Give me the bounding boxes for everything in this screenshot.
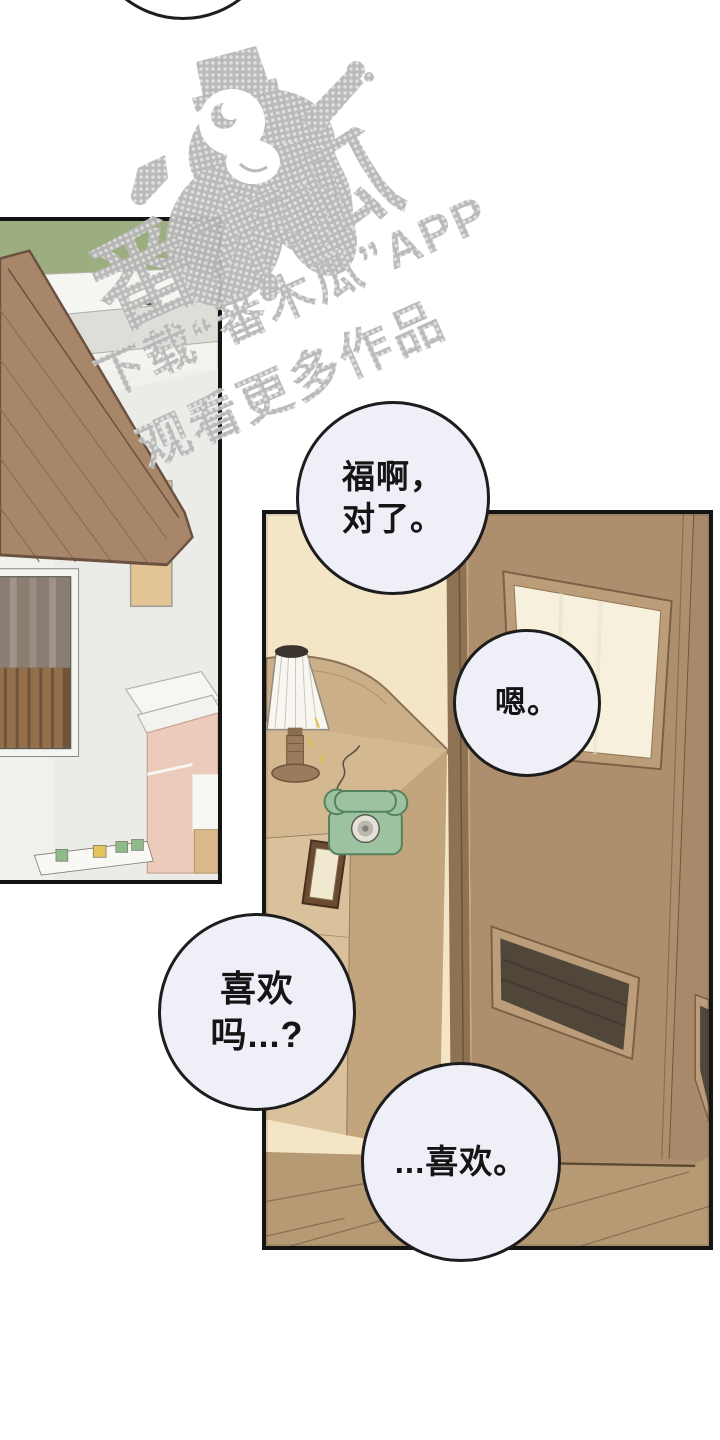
speech-line: ...喜欢。: [395, 1141, 528, 1183]
speech-bubble-3: 喜欢 吗...?: [158, 913, 356, 1111]
speech-line: 对了。: [342, 498, 444, 540]
speech-bubble-1: 福啊， 对了。: [296, 401, 490, 595]
speech-line: 嗯。: [495, 683, 559, 723]
mascot-eye-icon: [199, 89, 265, 155]
speech-bubble-2: 嗯。: [453, 629, 601, 777]
panel-house-exterior: [0, 217, 222, 884]
house-exterior-art: [0, 221, 218, 880]
speech-line: 福啊，: [342, 456, 444, 498]
lattice-window: [0, 569, 79, 757]
speech-line: 吗...?: [211, 1012, 304, 1058]
speech-line: 喜欢: [220, 966, 294, 1012]
top-bubble-remnant: [88, 0, 278, 20]
speech-bubble-4: ...喜欢。: [361, 1062, 561, 1262]
comic-page: 番木瓜 下载“番木瓜”APP 观看更多作品 福啊， 对了。 嗯。 喜欢 吗...…: [0, 0, 720, 1440]
